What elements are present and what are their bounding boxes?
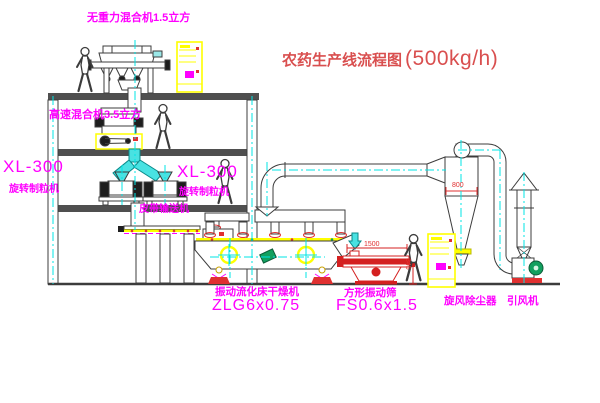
label-dryer-model: ZLG6x0.75 bbox=[212, 298, 300, 314]
indicator-magenta bbox=[185, 71, 194, 78]
label-screen-model: FS0.6x1.5 bbox=[336, 298, 418, 314]
dryer-foot bbox=[311, 267, 333, 284]
dim-screen-height: 345 bbox=[404, 258, 411, 270]
label-fan-name: 引风机 bbox=[507, 296, 539, 307]
diagram-title: 农药生产线流程图 (500kg/h) bbox=[282, 47, 498, 71]
label-belt-conveyor: 皮带输送机 bbox=[139, 205, 189, 215]
fan-base bbox=[512, 278, 542, 283]
worker-figure bbox=[155, 105, 171, 149]
label-high-speed-mixer: 高速混合机3.5立方 bbox=[49, 110, 141, 121]
title-capacity: (500kg/h) bbox=[405, 47, 498, 71]
granulators bbox=[99, 172, 187, 205]
control-cabinet-upper bbox=[177, 42, 202, 92]
dim-cyclone: 800 bbox=[452, 182, 464, 189]
label-dryer-name: 振动流化床干燥机 bbox=[215, 287, 299, 298]
flow-diagram-canvas: 农药生产线流程图 (500kg/h) 无重力混合机1.5立方 高速混合机3.5立… bbox=[0, 0, 600, 403]
label-granulator-mid-model: XL-300 bbox=[177, 163, 238, 180]
screen-motor bbox=[372, 268, 381, 277]
label-granulator-mid-name: 旋转制粒机 bbox=[179, 188, 229, 198]
label-gravity-mixer: 无重力混合机1.5立方 bbox=[87, 13, 190, 24]
dryer-foot bbox=[208, 267, 230, 284]
indicator-magenta bbox=[436, 263, 446, 270]
gravity-free-mixer bbox=[86, 46, 170, 112]
title-chinese: 农药生产线流程图 bbox=[282, 49, 402, 70]
control-cabinet-lower bbox=[428, 234, 455, 287]
induced-draft-fan bbox=[512, 258, 543, 283]
label-cyclone-name: 旋风除尘器 bbox=[444, 296, 497, 307]
label-granulator-left-model: XL-300 bbox=[3, 158, 64, 175]
label-granulator-left-name: 旋转制粒机 bbox=[9, 185, 59, 195]
dim-screen-length: 1500 bbox=[364, 241, 380, 248]
belt-conveyor bbox=[118, 226, 200, 283]
